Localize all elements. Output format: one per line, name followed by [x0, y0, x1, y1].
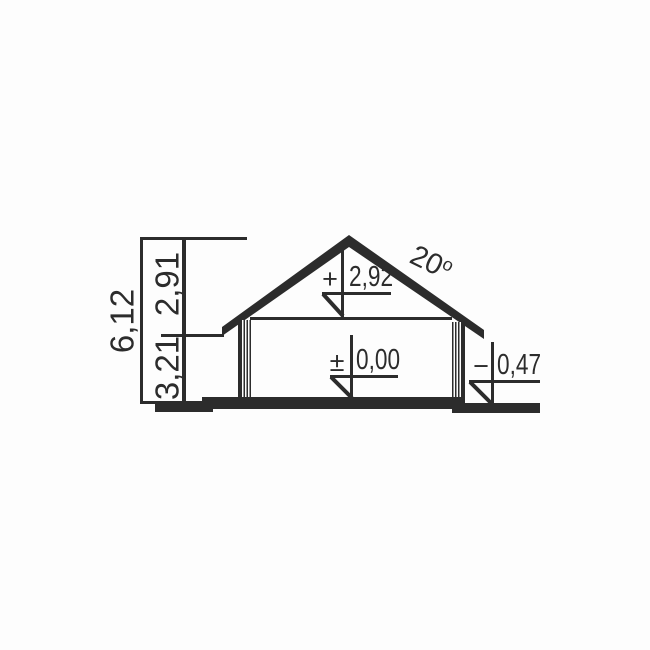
floor-level-flag-diagonal [331, 377, 352, 398]
attic-level-sign: + [320, 266, 340, 293]
attic-level-vline [341, 248, 344, 318]
right-wall [452, 322, 465, 402]
grade-level-flag-diagonal [470, 382, 492, 404]
roof-and-flags-layer [0, 0, 650, 650]
floor-level-value-wrap: 0,00 [356, 346, 412, 375]
floor-level-vline [350, 335, 353, 398]
right-grade-bar [452, 403, 540, 413]
floor-level-sign: ± [327, 349, 347, 376]
grade-level-vline [491, 342, 494, 404]
house-section-drawing: 6,12 2,91 3,21 + 2,92 ± 0,00 − [0, 0, 650, 650]
attic-level-flag-diagonal [323, 294, 343, 316]
floor-slab [202, 397, 465, 409]
grade-level-value: 0,47 [497, 351, 541, 380]
grade-level-sign: − [471, 353, 491, 380]
left-wall [238, 320, 251, 400]
attic-level-value-wrap: 2,92 [349, 263, 405, 292]
left-grade-bar [155, 404, 213, 412]
grade-level-value-wrap: 0,47 [497, 351, 553, 380]
attic-level-value: 2,92 [349, 263, 393, 292]
attic-floor-line [250, 317, 452, 320]
floor-level-value: 0,00 [356, 346, 400, 375]
